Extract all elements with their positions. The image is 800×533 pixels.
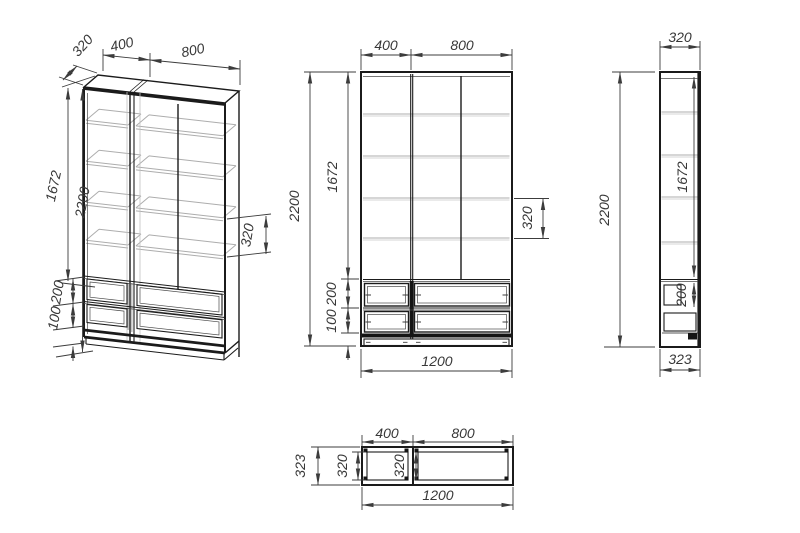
front-shelves (363, 114, 510, 240)
iso-dim-total-height: 2200 (71, 185, 92, 220)
front-dim-door-height: 1672 (324, 161, 340, 192)
front-dim-right-width: 800 (450, 37, 474, 53)
front-dim-total-width: 1200 (421, 353, 452, 369)
side-dim-overall-depth: 323 (668, 351, 692, 367)
plan-dim-right-inner-depth: 320 (391, 454, 407, 478)
side-view: 320 2200 1672 200 323 (596, 29, 700, 377)
plan-dim-left-width: 400 (375, 425, 399, 441)
iso-dim-left-width: 400 (109, 34, 136, 55)
plan-dim-overall-depth: 323 (292, 454, 308, 478)
plan-dim-right-width: 800 (451, 425, 475, 441)
iso-dim-depth: 320 (68, 31, 96, 59)
front-dim-drawer-row: 200 (323, 282, 339, 307)
iso-view: 320 400 800 1672 2200 320 (42, 31, 271, 361)
iso-dim-bottom-drawer: 100 (44, 305, 64, 331)
technical-drawing-canvas: 320 400 800 1672 2200 320 (0, 0, 800, 533)
drawing-svg: 320 400 800 1672 2200 320 (0, 0, 800, 533)
iso-dim-door-height: 1672 (42, 169, 64, 203)
front-drawers (362, 284, 511, 346)
side-dim-door-height: 1672 (674, 161, 690, 192)
iso-dim-shelf-gap: 320 (237, 222, 257, 248)
plan-body (362, 447, 513, 485)
plan-dim-total-width: 1200 (422, 487, 453, 503)
side-dim-total-height: 2200 (596, 194, 612, 226)
iso-shelves-left (86, 109, 141, 248)
front-view: 400 800 2200 1672 200 100 320 1200 (286, 37, 549, 378)
plan-dim-left-inner-depth: 320 (334, 454, 350, 478)
front-dim-left-width: 400 (374, 37, 398, 53)
iso-dim-right-width: 800 (180, 40, 206, 61)
front-dim-shelf-gap: 320 (519, 206, 535, 230)
front-dim-total-height: 2200 (286, 190, 302, 222)
front-dim-bottom-drawer: 100 (323, 309, 339, 333)
side-dim-depth: 320 (668, 29, 692, 45)
plan-dimensions: 400 800 323 320 320 1200 (292, 425, 513, 510)
side-dim-drawer-row: 200 (673, 283, 689, 308)
iso-shelves-right (136, 115, 236, 259)
iso-drawer-zone (84, 276, 238, 360)
iso-dim-drawer-row: 200 (47, 279, 67, 306)
plan-view: 400 800 323 320 320 1200 (292, 425, 513, 510)
